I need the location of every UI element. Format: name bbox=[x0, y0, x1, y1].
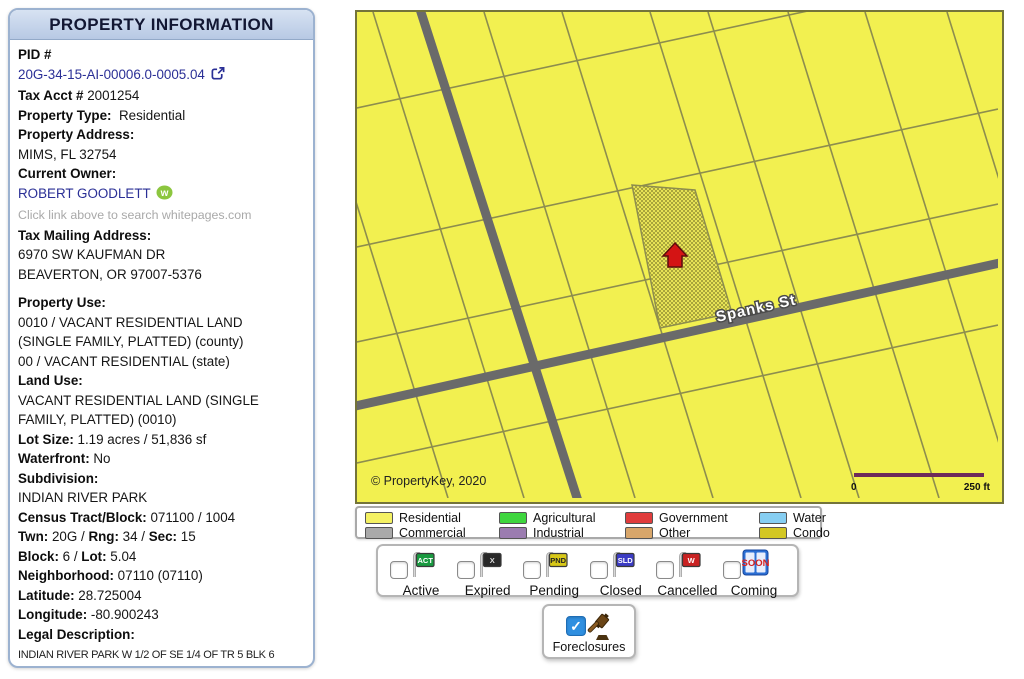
info-text: FAMILY, PLATTED) (0010) bbox=[18, 412, 177, 427]
legend-item-other: Other bbox=[625, 525, 759, 540]
svg-text:SLD: SLD bbox=[617, 556, 633, 565]
info-text: Rng: bbox=[88, 529, 119, 544]
status-coming: SOONComing bbox=[723, 549, 785, 595]
tax-mailing-label: Tax Mailing Address: bbox=[18, 226, 305, 246]
pending-checkbox[interactable] bbox=[523, 561, 541, 579]
property-use-county-2: (SINGLE FAMILY, PLATTED) (county) bbox=[18, 332, 305, 352]
info-text: Census Tract/Block: bbox=[18, 510, 147, 525]
legend-label: Government bbox=[659, 511, 728, 525]
active-checkbox[interactable] bbox=[390, 561, 408, 579]
status-active: ACTActive bbox=[390, 549, 452, 595]
info-text: 5.04 bbox=[107, 549, 137, 564]
scale-start-label: 0 bbox=[851, 482, 857, 493]
info-text: 2001254 bbox=[84, 88, 140, 103]
twn-rng-sec-row: Twn: 20G / Rng: 34 / Sec: 15 bbox=[18, 527, 305, 547]
legend-item-agricultural: Agricultural bbox=[499, 510, 625, 525]
property-info-body: PID #20G-34-15-AI-00006.0-0005.04Tax Acc… bbox=[10, 40, 313, 666]
page-title: PROPERTY INFORMATION bbox=[49, 15, 274, 35]
info-text: Property Type: bbox=[18, 108, 112, 123]
pid-link[interactable]: 20G-34-15-AI-00006.0-0005.04 bbox=[18, 67, 205, 82]
cancelled-flag-icon: W bbox=[675, 549, 702, 584]
map-copyright: © PropertyKey, 2020 bbox=[371, 474, 486, 488]
info-text: Residential bbox=[112, 108, 186, 123]
whitepages-icon[interactable]: w bbox=[156, 185, 173, 206]
property-information-screen: PROPERTY INFORMATION PID #20G-34-15-AI-0… bbox=[0, 0, 1024, 679]
info-text: Lot: bbox=[81, 549, 106, 564]
status-filter-box: ACTActiveXExpiredPNDPendingSLDClosedWCan… bbox=[376, 544, 799, 597]
legal-description-label: Legal Description: bbox=[18, 625, 305, 645]
agricultural-color-swatch bbox=[499, 512, 527, 524]
info-text: 28.725004 bbox=[75, 588, 142, 603]
svg-text:PND: PND bbox=[550, 556, 566, 565]
parcel-map-canvas: Spanks St © PropertyKey, 2020 0 250 ft bbox=[357, 12, 998, 498]
info-text: 071100 / 1004 bbox=[147, 510, 235, 525]
current-owner-label: Current Owner: bbox=[18, 164, 305, 184]
government-color-swatch bbox=[625, 512, 653, 524]
info-text: Property Use: bbox=[18, 295, 106, 310]
info-text: Current Owner: bbox=[18, 166, 116, 181]
subdivision-label: Subdivision: bbox=[18, 469, 305, 489]
scale-end-label: 250 ft bbox=[964, 482, 991, 493]
foreclosures-label: Foreclosures bbox=[544, 640, 634, 654]
longitude-row: Longitude: -80.900243 bbox=[18, 605, 305, 625]
info-text: Block: bbox=[18, 549, 59, 564]
parcel-map[interactable]: Spanks St © PropertyKey, 2020 0 250 ft bbox=[355, 10, 1004, 504]
info-text: Lot Size: bbox=[18, 432, 74, 447]
info-text: 1.19 acres / 51,836 sf bbox=[74, 432, 207, 447]
info-text: 07110 (07110) bbox=[114, 568, 203, 583]
info-text: 00 / VACANT RESIDENTIAL (state) bbox=[18, 354, 230, 369]
info-text: No bbox=[90, 451, 111, 466]
coming-label: Coming bbox=[714, 583, 794, 598]
info-line bbox=[18, 284, 305, 293]
map-legend: ResidentialCommercialAgriculturalIndustr… bbox=[355, 506, 822, 539]
legal-description-value: INDIAN RIVER PARK W 1/2 OF SE 1/4 OF TR … bbox=[18, 644, 305, 666]
expired-checkbox[interactable] bbox=[457, 561, 475, 579]
info-text: Click link above to search whitepages.co… bbox=[18, 208, 251, 222]
legend-label: Residential bbox=[399, 511, 461, 525]
info-text: 6 / bbox=[59, 549, 81, 564]
land-use-label: Land Use: bbox=[18, 371, 305, 391]
property-use-label: Property Use: bbox=[18, 293, 305, 313]
info-text: Longitude: bbox=[18, 607, 87, 622]
industrial-color-swatch bbox=[499, 527, 527, 539]
active-flag-icon: ACT bbox=[409, 549, 436, 584]
info-text: INDIAN RIVER PARK bbox=[18, 490, 147, 505]
foreclosures-box: Foreclosures bbox=[542, 604, 636, 659]
legend-item-residential: Residential bbox=[365, 510, 499, 525]
legend-item-water: Water bbox=[759, 510, 830, 525]
closed-checkbox[interactable] bbox=[590, 561, 608, 579]
property-address-value: MIMS, FL 32754 bbox=[18, 145, 305, 165]
info-text: -80.900243 bbox=[87, 607, 158, 622]
property-use-state: 00 / VACANT RESIDENTIAL (state) bbox=[18, 352, 305, 372]
svg-text:W: W bbox=[688, 556, 696, 565]
legend-label: Agricultural bbox=[533, 511, 596, 525]
waterfront-row: Waterfront: No bbox=[18, 449, 305, 469]
info-text: Legal Description: bbox=[18, 627, 135, 642]
closed-flag-icon: SLD bbox=[609, 549, 636, 584]
commercial-color-swatch bbox=[365, 527, 393, 539]
svg-text:ACT: ACT bbox=[417, 556, 433, 565]
info-text: VACANT RESIDENTIAL LAND (SINGLE bbox=[18, 393, 259, 408]
residential-color-swatch bbox=[365, 512, 393, 524]
subdivision-value: INDIAN RIVER PARK bbox=[18, 488, 305, 508]
pid-link-row: 20G-34-15-AI-00006.0-0005.04 bbox=[18, 65, 305, 87]
status-cancelled: WCancelled bbox=[656, 549, 718, 595]
info-text: Subdivision: bbox=[18, 471, 98, 486]
owner-link[interactable]: ROBERT GOODLETT bbox=[18, 186, 151, 201]
info-text: Twn: bbox=[18, 529, 48, 544]
mailing-city: BEAVERTON, OR 97007-5376 bbox=[18, 265, 305, 285]
info-text: PID # bbox=[18, 47, 52, 62]
neighborhood-row: Neighborhood: 07110 (07110) bbox=[18, 566, 305, 586]
legend-label: Other bbox=[659, 526, 690, 540]
mailing-street: 6970 SW KAUFMAN DR bbox=[18, 245, 305, 265]
property-use-county-1: 0010 / VACANT RESIDENTIAL LAND bbox=[18, 313, 305, 333]
census-row: Census Tract/Block: 071100 / 1004 bbox=[18, 508, 305, 528]
info-text: BEAVERTON, OR 97007-5376 bbox=[18, 267, 202, 282]
legend-label: Condo bbox=[793, 526, 830, 540]
info-text: 34 / bbox=[119, 529, 149, 544]
svg-text:SOON: SOON bbox=[742, 558, 769, 569]
info-text: (SINGLE FAMILY, PLATTED) (county) bbox=[18, 334, 243, 349]
external-link-icon[interactable] bbox=[210, 66, 226, 87]
foreclosures-checkbox[interactable] bbox=[566, 616, 586, 636]
info-text: 15 bbox=[177, 529, 196, 544]
panel-header: PROPERTY INFORMATION bbox=[10, 10, 313, 40]
condo-color-swatch bbox=[759, 527, 787, 539]
legend-label: Commercial bbox=[399, 526, 466, 540]
info-text: Waterfront: bbox=[18, 451, 90, 466]
latitude-row: Latitude: 28.725004 bbox=[18, 586, 305, 606]
legend-item-industrial: Industrial bbox=[499, 525, 625, 540]
info-text: 6970 SW KAUFMAN DR bbox=[18, 247, 165, 262]
coming-checkbox[interactable] bbox=[723, 561, 741, 579]
status-pending: PNDPending bbox=[523, 549, 585, 595]
legend-item-government: Government bbox=[625, 510, 759, 525]
tax-acct-row: Tax Acct # 2001254 bbox=[18, 86, 305, 106]
coming-flag-icon: SOON bbox=[742, 549, 769, 581]
land-use-value-1: VACANT RESIDENTIAL LAND (SINGLE bbox=[18, 391, 305, 411]
pending-flag-icon: PND bbox=[542, 549, 569, 584]
status-expired: XExpired bbox=[457, 549, 519, 595]
property-info-panel: PROPERTY INFORMATION PID #20G-34-15-AI-0… bbox=[8, 8, 315, 668]
expired-flag-icon: X bbox=[476, 549, 503, 584]
owner-link-row: ROBERT GOODLETTw bbox=[18, 184, 305, 206]
info-text: MIMS, FL 32754 bbox=[18, 147, 117, 162]
info-text: Tax Acct # bbox=[18, 88, 84, 103]
property-type-row: Property Type: Residential bbox=[18, 106, 305, 126]
property-address-label: Property Address: bbox=[18, 125, 305, 145]
block-lot-row: Block: 6 / Lot: 5.04 bbox=[18, 547, 305, 567]
status-closed: SLDClosed bbox=[590, 549, 652, 595]
other-color-swatch bbox=[625, 527, 653, 539]
land-use-value-2: FAMILY, PLATTED) (0010) bbox=[18, 410, 305, 430]
info-text: Property Address: bbox=[18, 127, 134, 142]
legend-label: Water bbox=[793, 511, 826, 525]
legend-label: Industrial bbox=[533, 526, 584, 540]
info-text: Land Use: bbox=[18, 373, 83, 388]
svg-text:X: X bbox=[489, 556, 494, 565]
info-text: Tax Mailing Address: bbox=[18, 228, 151, 243]
legend-item-condo: Condo bbox=[759, 525, 830, 540]
info-text: 0010 / VACANT RESIDENTIAL LAND bbox=[18, 315, 243, 330]
cancelled-checkbox[interactable] bbox=[656, 561, 674, 579]
info-text: Sec: bbox=[149, 529, 177, 544]
info-text: Neighborhood: bbox=[18, 568, 114, 583]
info-text: 20G / bbox=[48, 529, 88, 544]
legend-item-commercial: Commercial bbox=[365, 525, 499, 540]
water-color-swatch bbox=[759, 512, 787, 524]
lot-size-row: Lot Size: 1.19 acres / 51,836 sf bbox=[18, 430, 305, 450]
info-text: Latitude: bbox=[18, 588, 75, 603]
pid-label-row: PID # bbox=[18, 45, 305, 65]
whitepages-hint: Click link above to search whitepages.co… bbox=[18, 205, 305, 226]
svg-text:w: w bbox=[159, 188, 168, 199]
info-text: INDIAN RIVER PARK W 1/2 OF SE 1/4 OF TR … bbox=[18, 649, 274, 661]
